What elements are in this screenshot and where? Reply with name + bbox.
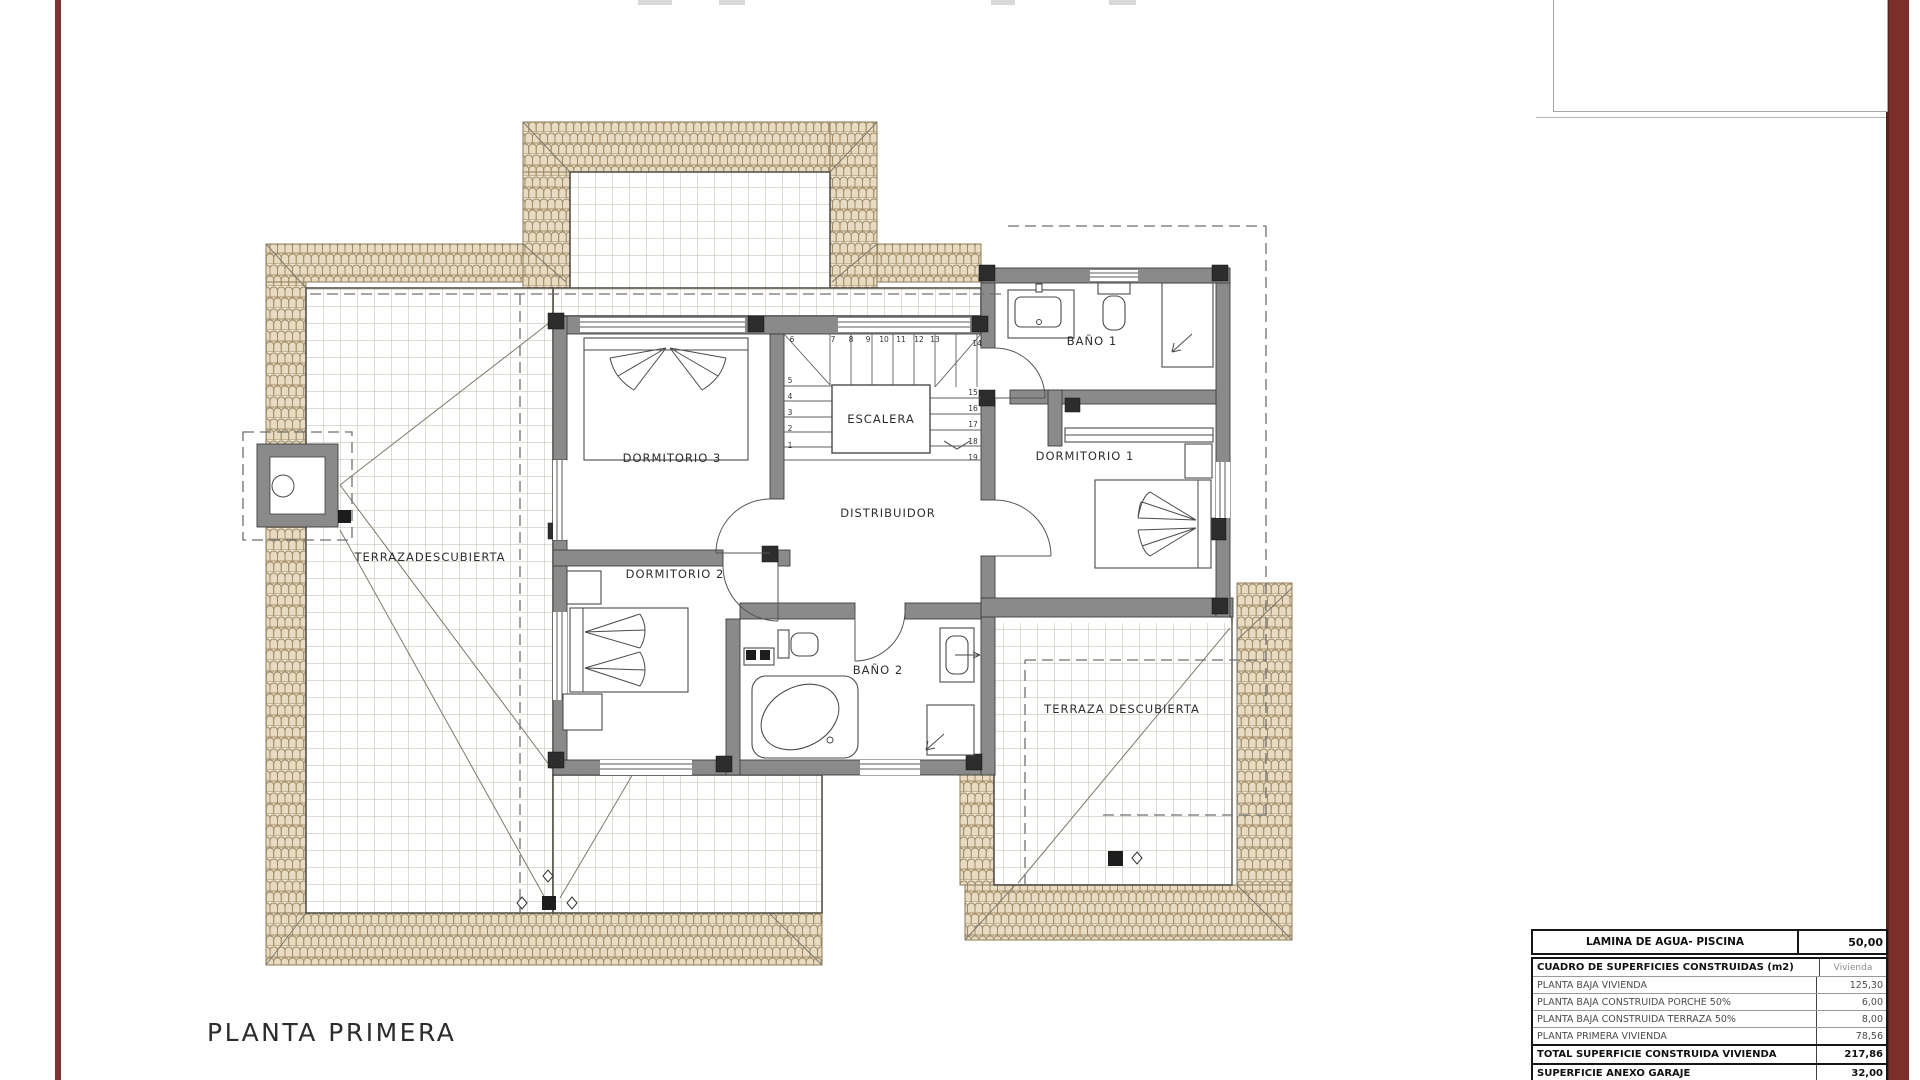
room-label-bano2: BAÑO 2 (853, 662, 903, 677)
sheet-border-left (55, 0, 61, 1080)
pool-label: LAMINA DE AGUA- PISCINA (1533, 936, 1797, 948)
page-title: PLANTA PRIMERA (207, 1018, 456, 1047)
table-row: PLANTA BAJA VIVIENDA 125,30 (1533, 976, 1886, 993)
svg-text:8: 8 (849, 335, 854, 344)
table-row: PLANTA PRIMERA VIVIENDA 78,56 (1533, 1027, 1886, 1044)
room-label-bano1: BAÑO 1 (1067, 333, 1117, 348)
room-label-dormitorio1: DORMITORIO 1 (1036, 449, 1135, 463)
svg-text:11: 11 (896, 335, 906, 344)
room-label-terraza-derecha: TERRAZA DESCUBIERTA (1043, 702, 1200, 716)
svg-text:1: 1 (788, 441, 793, 450)
svg-text:5: 5 (788, 376, 793, 385)
table-row: PLANTA BAJA CONSTRUIDA PORCHE 50% 6,00 (1533, 993, 1886, 1010)
pool-value: 50,00 (1797, 931, 1886, 953)
svg-text:10: 10 (879, 335, 889, 344)
room-label-escalera: ESCALERA (847, 412, 915, 426)
title-block-underline (1536, 117, 1886, 118)
bed-dormitorio3 (584, 338, 748, 460)
table-row: PLANTA BAJA CONSTRUIDA TERRAZA 50% 8,00 (1533, 1010, 1886, 1027)
table-header-row: CUADRO DE SUPERFICIES CONSTRUIDAS (m2) V… (1533, 959, 1886, 976)
svg-text:14: 14 (972, 339, 982, 348)
table-total-row: TOTAL SUPERFICIE CONSTRUIDA VIVIENDA 217… (1533, 1044, 1886, 1063)
room-label-dormitorio3: DORMITORIO 3 (623, 451, 722, 465)
sheet-border-right (1886, 0, 1909, 1080)
svg-text:6: 6 (790, 335, 795, 344)
table-row: SUPERFICIE ANEXO GARAJE 32,00 (1533, 1063, 1886, 1080)
floor-plan: ESCALERA 1 2 3 4 5 6 7 8 9 10 11 12 13 1… (0, 0, 1920, 1080)
room-label-dormitorio2: DORMITORIO 2 (626, 567, 725, 581)
room-label-distribuidor: DISTRIBUIDOR (840, 506, 936, 520)
svg-text:13: 13 (930, 335, 940, 344)
svg-text:16: 16 (968, 404, 978, 413)
svg-text:7: 7 (831, 335, 836, 344)
svg-text:4: 4 (788, 392, 793, 401)
title-block-box (1553, 0, 1888, 112)
svg-text:12: 12 (914, 335, 924, 344)
pool-surface-table: LAMINA DE AGUA- PISCINA 50,00 (1531, 929, 1888, 955)
room-label-terraza-izquierda: TERRAZADESCUBIERTA (354, 550, 506, 564)
surfaces-table: CUADRO DE SUPERFICIES CONSTRUIDAS (m2) V… (1531, 957, 1888, 1080)
svg-text:9: 9 (866, 335, 871, 344)
svg-text:2: 2 (788, 424, 793, 433)
drawing-sheet: ESCALERA 1 2 3 4 5 6 7 8 9 10 11 12 13 1… (0, 0, 1920, 1080)
svg-text:17: 17 (968, 420, 978, 429)
chimney (243, 432, 352, 540)
svg-text:19: 19 (968, 453, 978, 462)
svg-text:18: 18 (968, 437, 978, 446)
svg-text:3: 3 (788, 408, 793, 417)
svg-text:15: 15 (968, 388, 978, 397)
